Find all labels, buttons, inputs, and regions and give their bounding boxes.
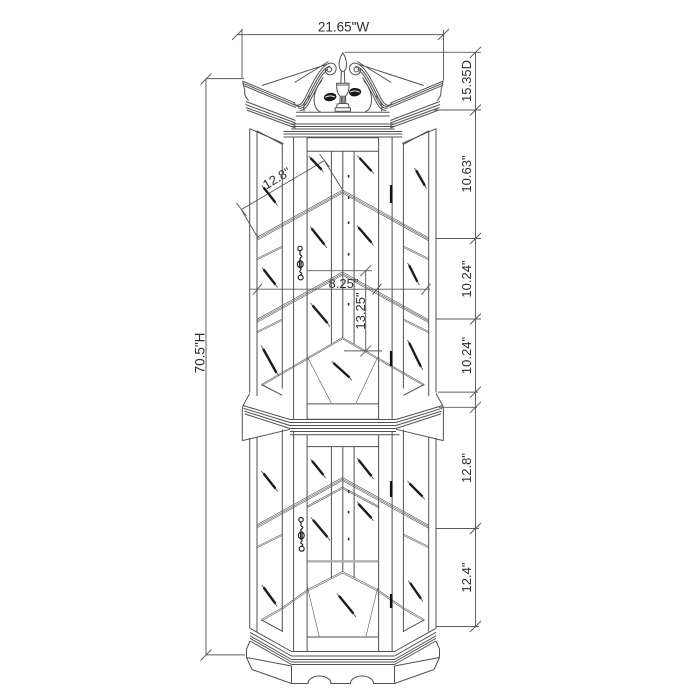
svg-text:13.25": 13.25" bbox=[353, 292, 368, 330]
svg-text:21.65"W: 21.65"W bbox=[318, 20, 370, 35]
svg-text:15.35D: 15.35D bbox=[459, 60, 474, 102]
svg-text:10.63": 10.63" bbox=[459, 155, 474, 193]
svg-text:70.5"H: 70.5"H bbox=[193, 333, 208, 374]
svg-text:10.24": 10.24" bbox=[459, 260, 474, 298]
svg-text:10.24": 10.24" bbox=[459, 337, 474, 375]
svg-text:12.8": 12.8" bbox=[459, 453, 474, 483]
svg-text:12.4": 12.4" bbox=[459, 562, 474, 592]
